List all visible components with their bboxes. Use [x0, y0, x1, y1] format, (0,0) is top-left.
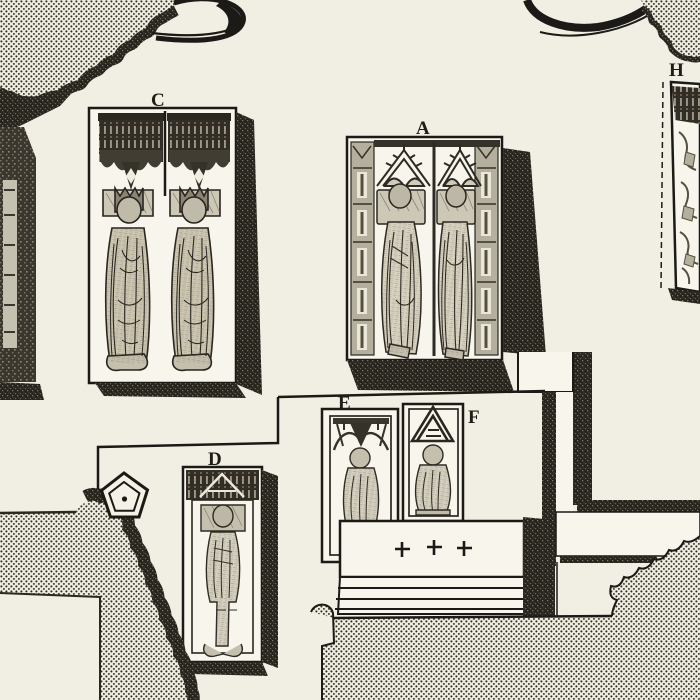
- svg-text:F: F: [468, 407, 480, 428]
- svg-text:H: H: [669, 60, 684, 81]
